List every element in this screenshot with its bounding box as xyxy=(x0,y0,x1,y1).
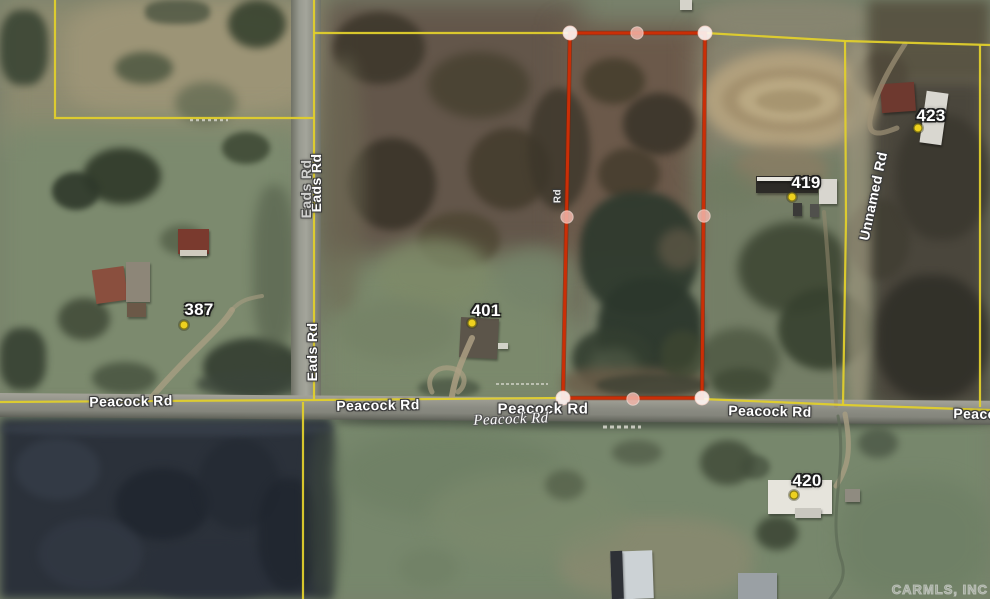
road-label-peacock-rd: Peacock Rd xyxy=(473,410,549,430)
address-label-419: 419 xyxy=(791,173,820,193)
map-labels-layer: Eads RdEads RdEads RdRdUnnamed RdPeacock… xyxy=(0,0,990,599)
road-label-peacock-rd: Peacock Rd xyxy=(89,392,173,409)
address-label-423: 423 xyxy=(916,106,945,126)
road-label-unnamed-rd: Unnamed Rd xyxy=(856,150,890,242)
road-label-eads-rd: Eads Rd xyxy=(304,323,320,382)
address-label-387: 387 xyxy=(184,300,213,320)
road-label-peacock-rd: Peacock Rd xyxy=(728,402,812,419)
address-label-401: 401 xyxy=(471,301,500,321)
satellite-map-canvas[interactable]: Eads RdEads RdEads RdRdUnnamed RdPeacock… xyxy=(0,0,990,599)
road-label-eads-rd: Eads Rd xyxy=(298,160,314,219)
address-label-420: 420 xyxy=(792,471,821,491)
road-label-peacock-rd: Peacock Rd xyxy=(336,396,420,413)
road-label-rd: Rd xyxy=(553,189,564,203)
watermark: CARMLS, INC xyxy=(892,582,988,597)
road-label-peacock-rd: Peacock Rd xyxy=(953,405,990,422)
